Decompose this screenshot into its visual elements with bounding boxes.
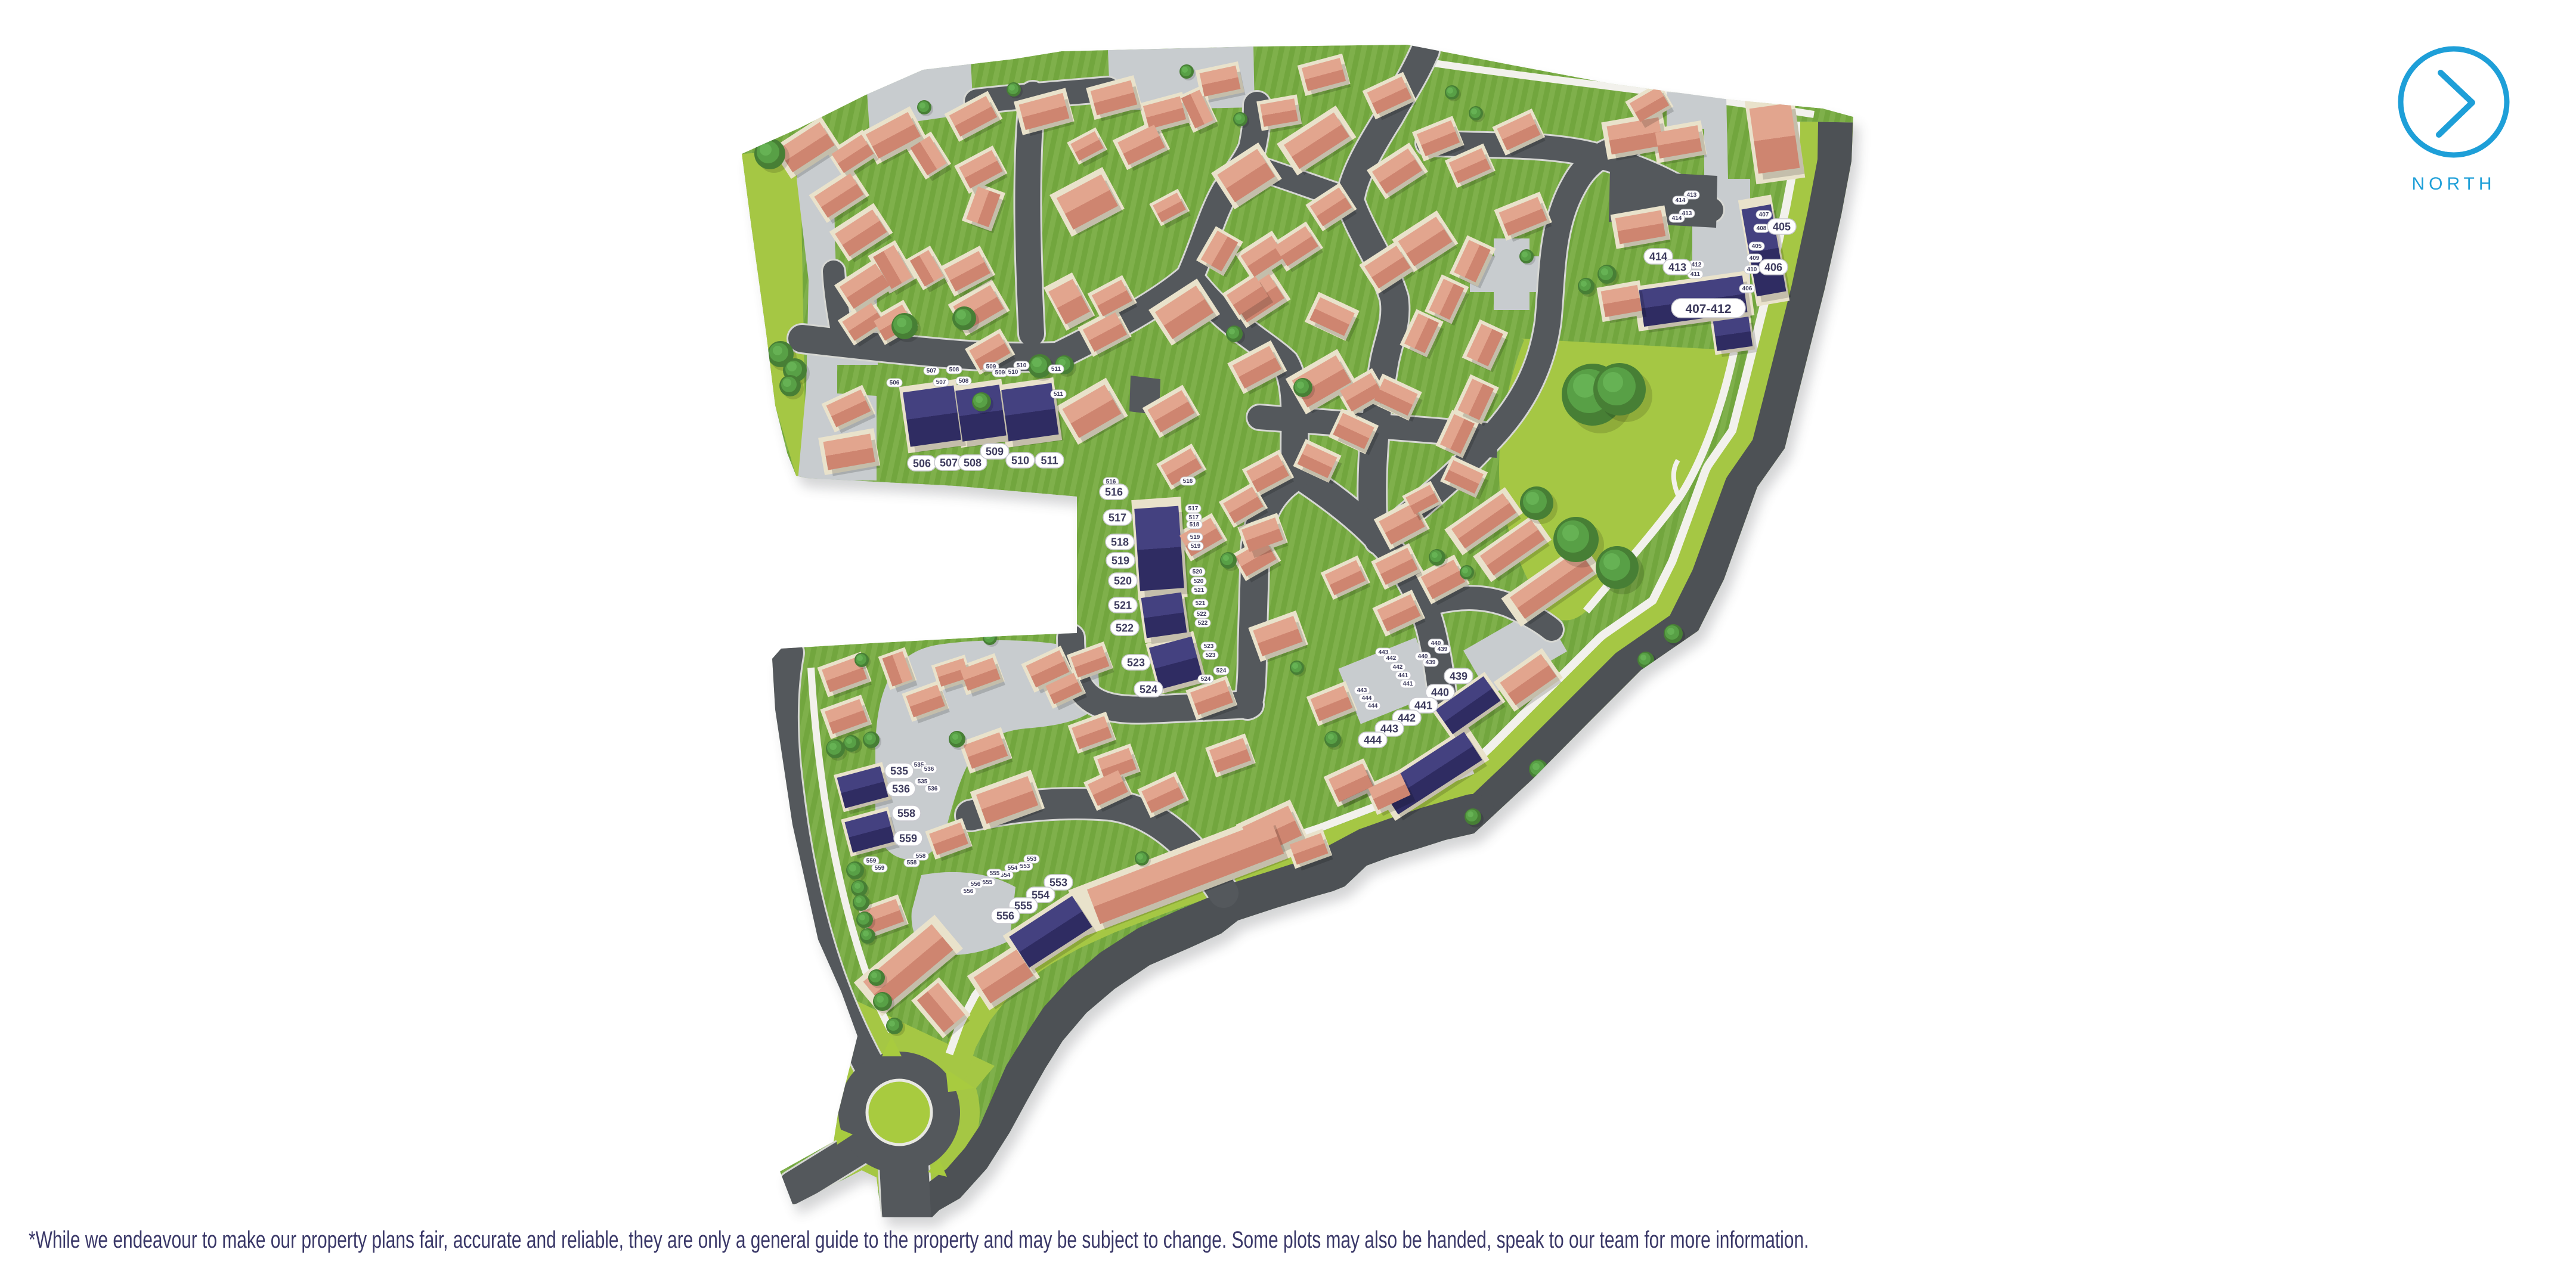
- svg-text:521: 521: [1194, 587, 1205, 594]
- svg-text:517: 517: [1188, 506, 1199, 512]
- svg-text:524: 524: [1201, 676, 1211, 683]
- svg-text:519: 519: [1191, 543, 1201, 550]
- svg-text:441: 441: [1403, 681, 1413, 687]
- svg-text:524: 524: [1216, 668, 1227, 674]
- svg-text:440: 440: [1431, 687, 1449, 699]
- svg-text:405: 405: [1773, 221, 1791, 233]
- svg-text:553: 553: [1020, 863, 1030, 870]
- svg-text:523: 523: [1127, 657, 1145, 669]
- svg-text:517: 517: [1109, 512, 1126, 524]
- svg-text:523: 523: [1204, 643, 1214, 650]
- svg-text:555: 555: [983, 879, 993, 886]
- svg-text:509: 509: [995, 370, 1005, 376]
- svg-text:407-412: 407-412: [1685, 302, 1731, 316]
- svg-text:509: 509: [986, 446, 1004, 458]
- svg-text:553: 553: [1027, 856, 1037, 863]
- svg-text:518: 518: [1190, 522, 1200, 528]
- svg-text:519: 519: [1111, 555, 1129, 567]
- svg-text:520: 520: [1194, 578, 1204, 585]
- svg-text:536: 536: [928, 786, 938, 792]
- svg-text:414: 414: [1672, 215, 1682, 222]
- svg-text:411: 411: [1690, 271, 1701, 278]
- svg-text:406: 406: [1764, 262, 1782, 274]
- svg-text:522: 522: [1198, 620, 1208, 627]
- svg-text:412: 412: [1692, 262, 1702, 268]
- svg-text:516: 516: [1105, 486, 1123, 498]
- svg-text:413: 413: [1687, 192, 1697, 199]
- svg-text:523: 523: [1206, 652, 1216, 659]
- svg-text:414: 414: [1676, 197, 1686, 204]
- svg-text:444: 444: [1362, 695, 1372, 702]
- svg-text:407: 407: [1759, 212, 1769, 218]
- svg-text:510: 510: [1008, 369, 1018, 376]
- svg-text:521: 521: [1196, 600, 1206, 607]
- svg-text:559: 559: [899, 833, 917, 845]
- svg-text:441: 441: [1414, 700, 1432, 712]
- svg-text:439: 439: [1438, 646, 1448, 653]
- svg-text:439: 439: [1450, 671, 1467, 683]
- svg-text:556: 556: [996, 910, 1014, 922]
- svg-text:556: 556: [971, 881, 981, 888]
- svg-text:406: 406: [1742, 286, 1753, 292]
- svg-text:517: 517: [1189, 514, 1199, 521]
- svg-text:413: 413: [1668, 262, 1686, 274]
- svg-text:507: 507: [927, 368, 937, 374]
- svg-text:508: 508: [964, 457, 982, 469]
- svg-text:518: 518: [1111, 537, 1129, 548]
- svg-text:409: 409: [1750, 255, 1760, 262]
- svg-text:508: 508: [959, 378, 969, 385]
- svg-text:516: 516: [1183, 478, 1193, 485]
- svg-text:506: 506: [890, 380, 900, 386]
- svg-text:555: 555: [990, 870, 1000, 877]
- svg-text:558: 558: [907, 860, 917, 866]
- svg-text:405: 405: [1752, 243, 1762, 250]
- svg-text:442: 442: [1393, 664, 1403, 671]
- svg-text:439: 439: [1426, 659, 1436, 666]
- svg-text:511: 511: [1054, 391, 1064, 398]
- svg-text:507: 507: [940, 457, 958, 469]
- svg-text:511: 511: [1051, 366, 1061, 373]
- svg-text:522: 522: [1116, 622, 1134, 634]
- svg-text:520: 520: [1114, 575, 1132, 587]
- svg-text:519: 519: [1190, 534, 1200, 541]
- svg-text:508: 508: [949, 367, 959, 373]
- svg-text:559: 559: [866, 858, 877, 864]
- svg-text:511: 511: [1041, 455, 1058, 467]
- svg-text:410: 410: [1747, 266, 1757, 273]
- svg-text:554: 554: [1008, 865, 1018, 872]
- svg-text:556: 556: [964, 888, 974, 895]
- svg-text:535: 535: [890, 765, 908, 777]
- svg-text:522: 522: [1197, 611, 1207, 618]
- svg-text:441: 441: [1398, 672, 1408, 679]
- svg-text:507: 507: [936, 379, 946, 386]
- svg-text:444: 444: [1364, 734, 1382, 746]
- svg-text:535: 535: [918, 779, 928, 785]
- svg-text:553: 553: [1049, 877, 1067, 889]
- svg-text:520: 520: [1193, 569, 1203, 575]
- svg-text:510: 510: [1011, 455, 1029, 467]
- svg-text:443: 443: [1357, 687, 1367, 694]
- svg-text:521: 521: [1114, 600, 1132, 612]
- svg-text:524: 524: [1140, 684, 1157, 696]
- svg-text:536: 536: [924, 766, 934, 773]
- svg-text:558: 558: [897, 808, 915, 820]
- svg-text:506: 506: [913, 458, 931, 470]
- svg-text:414: 414: [1649, 251, 1667, 263]
- svg-text:442: 442: [1386, 655, 1397, 662]
- svg-text:536: 536: [892, 783, 910, 795]
- svg-text:408: 408: [1757, 225, 1767, 232]
- svg-text:444: 444: [1368, 703, 1378, 709]
- svg-text:559: 559: [875, 865, 885, 872]
